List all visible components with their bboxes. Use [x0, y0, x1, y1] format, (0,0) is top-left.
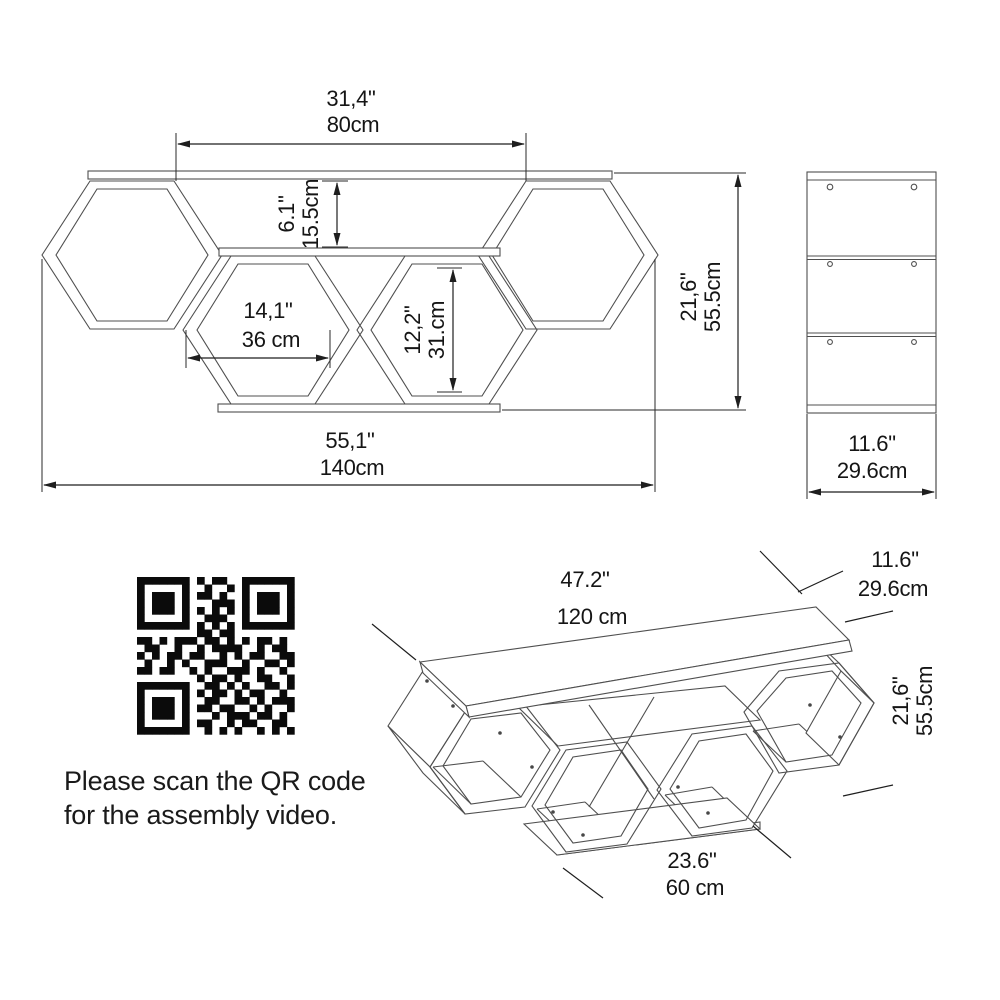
assembly-dimension-sheet: 31,4" 80cm 6.1" 15.5cm 14,1" 36 cm 12,2"…: [0, 0, 1000, 1000]
pin-hole: [581, 833, 585, 837]
pin-hole: [451, 704, 455, 708]
front-top-board: [88, 171, 612, 179]
pin-hole: [676, 785, 680, 789]
dim-side-depth-cm: 29.6cm: [837, 459, 907, 483]
front-hex-left-outer: [42, 181, 222, 329]
pin-hole: [551, 810, 555, 814]
pin-hole: [498, 731, 502, 735]
dim-front-shelf-gap-cm: 15.5cm: [299, 179, 323, 249]
dim-iso-top-length-cm: 120 cm: [557, 605, 627, 629]
iso-tick-bottom-left: [563, 868, 603, 898]
iso-tick-depth-back: [798, 571, 843, 592]
dim-front-shelf-gap: 6.1" 15.5cm: [275, 179, 323, 249]
iso-bottom-shelf-underside: [524, 798, 760, 855]
dim-iso-depth-cm: 29.6cm: [858, 577, 928, 601]
front-bottom-shelf: [218, 404, 500, 412]
dim-iso-bottom-length-in: 23.6": [667, 849, 716, 873]
dim-iso-bottom-length-cm: 60 cm: [666, 876, 724, 900]
iso-hex-left-inner: [443, 713, 550, 804]
qr-instruction-text: Please scan the QR code for the assembly…: [64, 765, 366, 833]
dim-side-depth-in: 11.6": [848, 432, 896, 456]
dim-iso-height: 21,6" 55.5cm: [889, 666, 937, 736]
front-hex-right-outer: [478, 181, 658, 329]
pin-hole: [425, 679, 429, 683]
pin-hole: [838, 735, 842, 739]
front-middle-shelf: [219, 248, 500, 256]
iso-tick-length-left: [372, 624, 416, 660]
drawing-canvas: [0, 0, 1000, 1000]
dim-iso-top-length-in: 47.2": [560, 568, 609, 592]
dim-front-total-height: 21,6" 55.5cm: [677, 262, 725, 332]
dim-front-shelf-gap-in: 6.1": [275, 179, 299, 249]
dim-front-cell-width-in: 14,1": [243, 299, 292, 323]
dim-front-cell-height-cm: 31.cm: [425, 301, 449, 359]
qr-instruction-line2: for the assembly video.: [64, 799, 366, 833]
pin-hole: [530, 765, 534, 769]
dim-front-total-height-in: 21,6": [677, 262, 701, 332]
iso-view: [372, 551, 893, 898]
dim-iso-height-in: 21,6": [889, 666, 913, 736]
iso-tick-length-right: [760, 551, 802, 594]
dim-front-total-width-cm: 140cm: [320, 456, 385, 480]
dim-front-cell-width-cm: 36 cm: [242, 328, 300, 352]
dim-front-top-width-cm: 80cm: [327, 113, 380, 137]
front-view: [42, 133, 746, 492]
dim-front-total-height-cm: 55.5cm: [701, 262, 725, 332]
dim-front-top-width-in: 31,4": [326, 87, 375, 111]
dim-iso-height-cm: 55.5cm: [913, 666, 937, 736]
iso-tick-bottom-right: [753, 826, 791, 858]
pin-hole: [706, 811, 710, 815]
side-body: [807, 172, 936, 413]
dim-front-cell-height: 12,2" 31.cm: [401, 301, 449, 359]
iso-tick-height-bottom: [843, 785, 893, 796]
pin-hole: [808, 703, 812, 707]
iso-tick-depth-front: [845, 611, 893, 622]
dim-front-total-width-in: 55,1": [325, 429, 374, 453]
dim-front-cell-height-in: 12,2": [401, 301, 425, 359]
iso-right-end-lower-wall: [806, 671, 874, 765]
qr-instruction-line1: Please scan the QR code: [64, 765, 366, 799]
qr-code: [137, 577, 295, 735]
iso-left-cell-interior: [433, 761, 521, 804]
dim-iso-depth-in: 11.6": [871, 548, 919, 572]
